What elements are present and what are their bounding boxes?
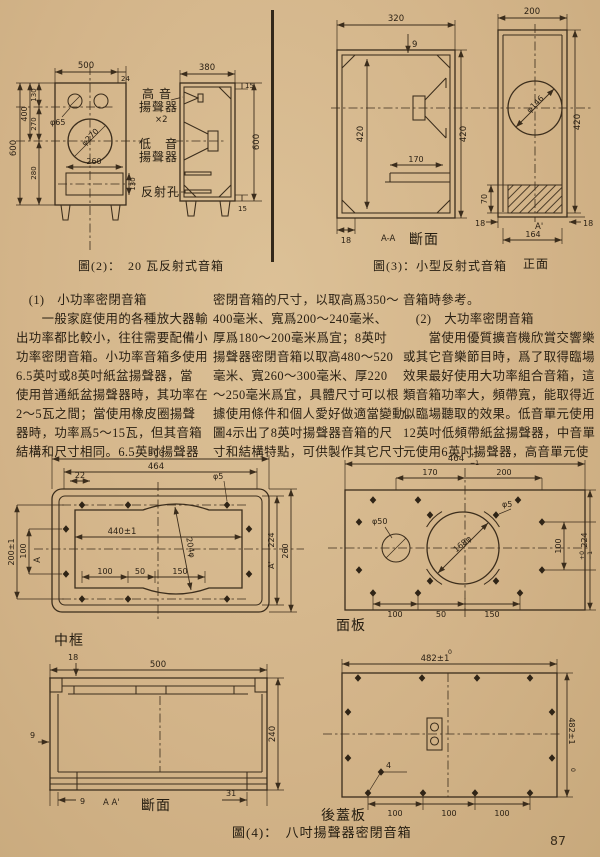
midframe-200-dim: 200±1 bbox=[7, 538, 16, 565]
panel-170-dim: 170 bbox=[422, 468, 437, 477]
fig2-side-bot15-dim: 15 bbox=[238, 205, 247, 213]
midframe-150-dim: 150 bbox=[172, 567, 187, 576]
panel-224-tol-bot: −1 bbox=[587, 551, 594, 560]
section-dimensions: 18 500 9 240 9 A A' 31 bbox=[30, 653, 284, 808]
fig2-side-height-dim: 600 bbox=[252, 134, 262, 150]
fig2-tweeter-count: ×2 bbox=[155, 115, 168, 125]
panel-dimensions: 464 +0 −1 170 200 φ50 φ5 168φ 100 224 +0… bbox=[345, 452, 596, 619]
panel-100b-dim: 100 bbox=[387, 610, 402, 619]
fig2-tweeter-dia-label: φ65 bbox=[50, 118, 65, 127]
fig3-shelf-dim: 170 bbox=[408, 155, 423, 164]
midframe-440-dim: 440±1 bbox=[108, 527, 137, 537]
fig2-port-width-dim: 260 bbox=[86, 157, 101, 166]
figure3-small-reflex-box: 320 9 420 420 170 18 A-A 斷面 bbox=[295, 4, 600, 278]
fig2-side-depth-dim: 380 bbox=[199, 63, 215, 73]
fig3-section-width-dim: 320 bbox=[388, 14, 404, 24]
fig2-woofer-callout-1: 低 音 bbox=[139, 136, 178, 151]
panel-hole5-label: φ5 bbox=[502, 500, 512, 509]
midframe-mark-a: A bbox=[33, 557, 43, 563]
panel-100r-dim: 100 bbox=[554, 538, 563, 553]
fig2-caption: 圖(2)： 20 瓦反射式音箱 bbox=[78, 258, 224, 273]
fig2-woofer-callout-2: 揚聲器 bbox=[139, 149, 178, 164]
panel-224-tol-top: +0 bbox=[579, 551, 586, 560]
fig2-port-callout: 反射孔 bbox=[141, 184, 180, 199]
backcover-hole-dia-label: 4 bbox=[386, 761, 391, 770]
midframe-dimensions: 500 464 22 φ5 440±1 204φ 100 50 150 200±… bbox=[7, 449, 297, 612]
fig3-section-outer-height-dim: 420 bbox=[459, 126, 469, 142]
fig3-caption: 圖(3)：小型反射式音箱 bbox=[373, 258, 507, 273]
text-column-1: (1) 小功率密閉音箱 一般家庭使用的各種放大器輸 出功率都比較小，往往需要配備… bbox=[16, 291, 216, 462]
section-500-dim: 500 bbox=[150, 660, 166, 670]
fig4-caption: 圖(4)： 八吋揚聲器密閉音箱 bbox=[232, 822, 412, 841]
section-9l-dim: 9 bbox=[30, 731, 35, 740]
panel-50b-dim: 50 bbox=[436, 610, 446, 619]
fig3-front-label: 正面 bbox=[523, 257, 549, 271]
scanned-book-page: 500 24 600 400 130 270 280 φ65 φ2 bbox=[0, 0, 600, 857]
fig3-front-width-dim: 200 bbox=[524, 7, 540, 17]
fig3-wall-left-dim: 18 bbox=[475, 219, 485, 228]
fig2-side-top15-dim: 15 bbox=[245, 82, 254, 90]
fig2-front-view: 500 24 600 400 130 270 280 φ65 φ2 bbox=[9, 61, 143, 250]
panel-464-tol-top: +0 bbox=[470, 452, 479, 459]
backcover-bolts bbox=[345, 674, 556, 797]
midframe-464-dim: 464 bbox=[148, 462, 164, 472]
panel-464-dim: 464 bbox=[448, 454, 464, 464]
midframe-outline bbox=[34, 482, 304, 620]
fig3-section-label: 斷面 bbox=[409, 232, 439, 248]
panel-hole50-label: φ50 bbox=[372, 517, 387, 526]
midframe-224-dim: 224 bbox=[267, 532, 276, 547]
section-mark: A A' bbox=[103, 798, 120, 808]
backcover-482t-dim: 482±1 bbox=[421, 654, 450, 664]
fig3-wall-dim: 18 bbox=[341, 236, 351, 245]
midframe-hole-dia-label: φ5 bbox=[213, 472, 223, 481]
backcover-dimensions: 0 482±1 482±1 0 4 100 100 100 bbox=[342, 649, 576, 818]
fig4-panel-drawing: 464 +0 −1 170 200 φ50 φ5 168φ 100 224 +0… bbox=[328, 448, 600, 650]
page-number: 87 bbox=[550, 833, 566, 848]
fig2-front-height-dim: 600 bbox=[9, 140, 19, 156]
backcover-right-tol: 0 bbox=[569, 768, 576, 772]
midframe-500-dim: 500 bbox=[148, 449, 164, 459]
section-label: 斷面 bbox=[141, 798, 171, 814]
midframe-100b-dim: 100 bbox=[97, 567, 112, 576]
section-9b-dim: 9 bbox=[80, 797, 85, 806]
panel-464-tol-bot: −1 bbox=[470, 460, 479, 467]
fig2-front-280-dim: 280 bbox=[30, 166, 38, 179]
text-column-2: 密閉音箱的尺寸，以取高爲350～ 400毫米、寬爲200～240毫米、 厚爲18… bbox=[213, 291, 413, 462]
fig2-front-130-dim: 130 bbox=[30, 88, 38, 101]
fig2-front-thickness-dim: 24 bbox=[121, 75, 130, 83]
midframe-arc-dia-label: 204φ bbox=[184, 537, 196, 559]
figure2-20w-reflex-box: 500 24 600 400 130 270 280 φ65 φ2 bbox=[6, 4, 274, 278]
section-240-dim: 240 bbox=[268, 726, 278, 742]
midframe-100l-dim: 100 bbox=[19, 543, 28, 558]
midframe-mark-ap: A' bbox=[267, 561, 276, 569]
text-column-3: 音箱時參考。 (2) 大功率密閉音箱 當使用優質擴音機欣賞交響樂 或其它音樂節目… bbox=[403, 291, 600, 462]
backcover-outline bbox=[323, 673, 561, 797]
fig2-front-width-dim: 500 bbox=[78, 61, 94, 71]
section-outline bbox=[50, 678, 267, 790]
panel-label: 面板 bbox=[336, 618, 366, 634]
midframe-260-dim: 260 bbox=[281, 543, 290, 558]
backcover-100b-dim: 100 bbox=[441, 809, 456, 818]
backcover-100a-dim: 100 bbox=[387, 809, 402, 818]
fig3-port-width-dim: 164 bbox=[525, 230, 540, 239]
section-31-dim: 31 bbox=[226, 789, 236, 798]
fig2-tweeter-callout-1: 高 音 bbox=[142, 86, 172, 101]
fig3-port-height-dim: 70 bbox=[480, 194, 489, 204]
fig3-section-mark: A-A bbox=[381, 234, 396, 244]
midframe-50-dim: 50 bbox=[135, 567, 145, 576]
section-18-dim: 18 bbox=[68, 653, 78, 662]
column-divider-rule bbox=[271, 10, 274, 262]
midframe-22-dim: 22 bbox=[75, 471, 85, 480]
panel-200-dim: 200 bbox=[496, 468, 511, 477]
fig4-section-drawing: 18 500 9 240 9 A A' 31 斷面 bbox=[8, 646, 330, 842]
fig3-section-panel-dim: 9 bbox=[412, 40, 417, 50]
fig3-front-height-dim: 420 bbox=[573, 114, 583, 130]
fig2-side-view: 380 15 600 15 高 音 揚聲器 ×2 低 音 揚聲器 反射孔 bbox=[139, 63, 262, 216]
backcover-482r-dim: 482±1 bbox=[567, 717, 576, 744]
backcover-100c-dim: 100 bbox=[494, 809, 509, 818]
panel-speaker-dia-label: 168φ bbox=[452, 534, 474, 554]
panel-224-dim: 224 bbox=[580, 532, 589, 547]
fig2-tweeter-callout-2: 揚聲器 bbox=[139, 99, 178, 114]
fig4-midframe-drawing: 500 464 22 φ5 440±1 204φ 100 50 150 200±… bbox=[6, 448, 326, 650]
fig3-section-view: 320 9 420 420 170 18 A-A 斷面 bbox=[337, 14, 469, 248]
fig2-front-270-dim: 270 bbox=[30, 117, 38, 130]
fig3-wall-right-dim: 18 bbox=[583, 219, 593, 228]
panel-150b-dim: 150 bbox=[484, 610, 499, 619]
fig3-section-inner-height-dim: 420 bbox=[356, 126, 366, 142]
fig2-front-400-dim: 400 bbox=[20, 106, 29, 121]
fig4-backcover-drawing: 0 482±1 482±1 0 4 100 100 100 後蓋板 bbox=[315, 646, 600, 842]
